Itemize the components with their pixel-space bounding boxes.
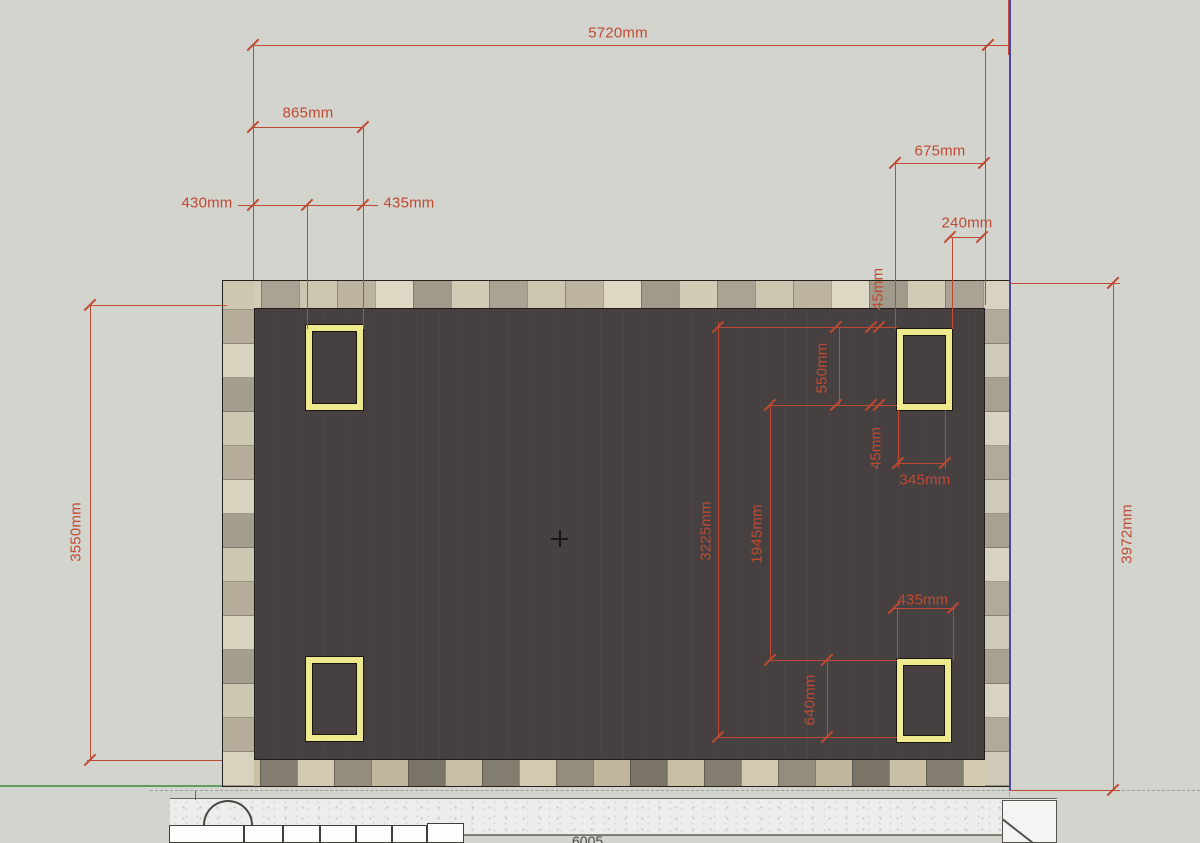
dim-865-line — [253, 127, 363, 128]
selected-edge-line[interactable] — [1009, 0, 1011, 791]
dim-345-line — [898, 463, 945, 464]
ext-line — [897, 608, 898, 660]
tile-strip-bottom[interactable] — [223, 760, 1009, 786]
post-marker-bottom-left[interactable] — [305, 656, 364, 742]
dim-label-5720[interactable]: 5720mm — [588, 25, 648, 42]
ext-line — [90, 305, 227, 306]
green-axis-line — [0, 785, 222, 787]
post-marker-top-right[interactable] — [896, 328, 953, 411]
ext-line — [307, 205, 308, 329]
dim-label-45-mid[interactable]: 45mm — [868, 427, 885, 469]
ext-line — [1008, 0, 1009, 55]
dim-label-430[interactable]: 430mm — [181, 195, 232, 212]
diagonal-edge — [1002, 818, 1037, 843]
interior-line-bottom — [718, 737, 897, 738]
post-marker-top-left[interactable] — [305, 324, 364, 411]
dim-675-line — [895, 163, 985, 164]
dim-640-line — [827, 660, 828, 737]
dim-label-640[interactable]: 640mm — [802, 674, 819, 725]
dim-label-675[interactable]: 675mm — [914, 143, 965, 160]
ext-line — [985, 45, 986, 305]
dim-label-3972[interactable]: 3972mm — [1119, 504, 1136, 564]
center-cross-marker — [551, 530, 568, 547]
tile-strip-right[interactable] — [985, 281, 1009, 786]
dim-label-435-bottom[interactable]: 435mm — [897, 592, 948, 609]
dim-3972-line — [1113, 283, 1114, 790]
ext-line — [87, 760, 222, 761]
dim-label-550[interactable]: 550mm — [814, 342, 831, 393]
panel-segment[interactable] — [244, 825, 283, 843]
post-hole — [312, 663, 357, 735]
post-hole — [903, 335, 946, 404]
ext-line — [895, 163, 896, 329]
panel-segment[interactable] — [427, 823, 464, 843]
dim-label-1945[interactable]: 1945mm — [749, 504, 766, 564]
dim-3225-line — [718, 322, 719, 737]
ext-line — [1010, 283, 1120, 284]
dim-label-45-top[interactable]: 45mm — [870, 268, 887, 310]
dim-5720-line — [253, 45, 1008, 46]
panel-segment[interactable] — [356, 825, 392, 843]
dim-550-line — [839, 327, 840, 405]
post-hole — [903, 665, 945, 736]
post-hole — [312, 331, 357, 404]
panel-segment[interactable] — [392, 825, 427, 843]
beam-edge-line — [195, 791, 196, 800]
interior-line-low — [770, 660, 897, 661]
dim-label-3550[interactable]: 3550mm — [68, 502, 85, 562]
panel-segment[interactable] — [320, 825, 356, 843]
dim-label-3225[interactable]: 3225mm — [698, 501, 715, 561]
cutoff-dimension-text: 6005 — [572, 833, 603, 843]
dim-label-345[interactable]: 345mm — [899, 472, 950, 489]
cross-bar — [559, 530, 561, 547]
tile-strip-left[interactable] — [223, 281, 254, 786]
drawing-viewport[interactable]: 6005 — [0, 0, 1200, 843]
panel-segment[interactable] — [169, 825, 244, 843]
ext-line — [952, 237, 953, 329]
post-marker-bottom-right[interactable] — [896, 658, 952, 743]
beam-bottom-edge — [464, 835, 1002, 836]
ext-line — [253, 45, 254, 280]
tile-strip-top[interactable] — [223, 281, 1009, 308]
ext-line — [953, 608, 954, 660]
dim-label-865[interactable]: 865mm — [282, 105, 333, 122]
dim-1945-line — [770, 405, 771, 660]
ext-line — [363, 127, 364, 329]
beam-end-cap[interactable] — [1002, 800, 1057, 843]
ext-line — [1010, 790, 1120, 791]
dim-label-240[interactable]: 240mm — [941, 215, 992, 232]
panel-segment[interactable] — [283, 825, 320, 843]
dim-3550-line — [90, 305, 91, 760]
dim-label-435-top[interactable]: 435mm — [383, 195, 434, 212]
